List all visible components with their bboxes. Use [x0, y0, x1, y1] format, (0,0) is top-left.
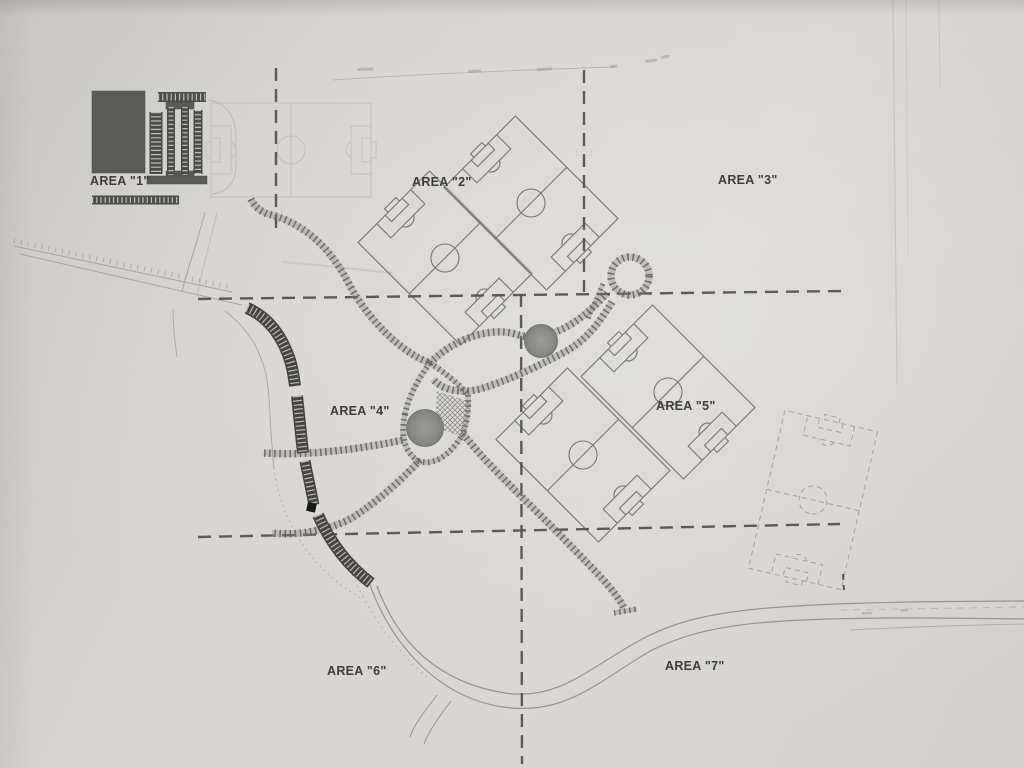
faint-line [208, 100, 236, 194]
penalty-arc [611, 483, 626, 498]
penalty-box [688, 412, 736, 460]
faint-line [893, 0, 897, 385]
faint-line [939, 0, 940, 88]
goal-box [523, 395, 546, 418]
penalty-arc [346, 142, 351, 158]
penalty-box [211, 126, 231, 174]
penalty-box [377, 190, 425, 238]
soccer-field [354, 167, 535, 348]
scan-smudge [610, 65, 617, 68]
trail-rungs [272, 460, 420, 534]
faint-line [20, 254, 242, 305]
structure-marker [306, 502, 317, 513]
penalty-arc [696, 420, 711, 435]
goal [608, 332, 623, 347]
goal [523, 395, 538, 410]
faint-line [14, 241, 230, 287]
area-5-label: AREA "5" [656, 399, 716, 413]
faint-line [850, 624, 1024, 630]
field-halfway-line [632, 356, 703, 427]
road-edge-line [377, 586, 1024, 694]
area-2-label: AREA "2" [412, 175, 472, 189]
faint-line [906, 0, 908, 255]
soccer-field [577, 301, 758, 482]
faint-line [182, 212, 205, 291]
penalty-arc [818, 439, 835, 447]
building [92, 91, 145, 173]
boundary-dashed-line [521, 294, 522, 764]
trail-rungs [430, 293, 607, 363]
goal [371, 142, 376, 158]
scan-smudge [900, 609, 908, 612]
area-4-label: AREA "4" [330, 404, 390, 418]
goal-box [362, 138, 371, 162]
penalty-arc [625, 349, 640, 364]
goal-box [481, 294, 504, 317]
field-halfway-line [547, 419, 618, 490]
goal [629, 501, 644, 516]
penalty-arc [791, 553, 808, 561]
road-edge-line [366, 573, 1024, 708]
penalty-arc [473, 286, 488, 301]
soccer-field [492, 364, 673, 545]
goal-box [471, 143, 494, 166]
penalty-box [551, 223, 599, 271]
faint-line [173, 309, 177, 357]
plan-geometry-layer [14, 0, 1024, 764]
faint-line [333, 67, 615, 80]
penalty-box [603, 475, 651, 523]
soccer-field [440, 112, 621, 293]
penalty-arc [559, 231, 574, 246]
area-7-label: AREA "7" [665, 659, 725, 673]
penalty-box [351, 126, 371, 174]
penalty-arc [540, 412, 555, 427]
trail-body [430, 293, 607, 363]
penalty-box [600, 324, 648, 372]
penalty-arc [488, 160, 503, 175]
scan-smudge [468, 70, 481, 73]
field-halfway-line [409, 222, 480, 293]
field-halfway-line [495, 167, 566, 238]
goal [491, 304, 506, 319]
site-plan-photo: AREA "1" AREA "2" AREA "3" AREA "4" AREA… [0, 0, 1024, 768]
scan-smudge [537, 67, 552, 71]
goal [385, 198, 400, 213]
penalty-arc [402, 215, 417, 230]
area-1-label: AREA "1" [90, 174, 150, 188]
site-plan-drawing: AREA "1" AREA "2" AREA "3" AREA "4" AREA… [0, 0, 1024, 768]
goal [714, 438, 729, 453]
faint-line [840, 607, 1024, 610]
area-6-label: AREA "6" [327, 664, 387, 678]
trail-body [405, 363, 430, 414]
penalty-box [465, 278, 513, 326]
goal-box [608, 332, 631, 355]
scan-smudge [661, 55, 669, 59]
trail-body [611, 257, 649, 295]
scan-smudge [862, 612, 872, 615]
goal-box [704, 428, 727, 451]
scan-smudge [357, 67, 373, 71]
goal [471, 143, 486, 158]
road-edge-line [410, 695, 437, 737]
penalty-arc [231, 142, 236, 158]
penalty-box [803, 416, 854, 446]
area-3-label: AREA "3" [718, 173, 778, 187]
pond-circle [407, 410, 444, 447]
faint-line [197, 213, 217, 297]
goal [823, 414, 840, 422]
scan-smudge [645, 58, 657, 63]
field-halfway-line [767, 489, 860, 510]
faint-line [225, 311, 274, 468]
goal-box [385, 198, 408, 221]
pond-circle [525, 325, 558, 358]
parking-edge-bar [147, 176, 207, 184]
goal-box [211, 138, 220, 162]
goal-box [619, 491, 642, 514]
goal-box [567, 239, 590, 262]
soccer-field [747, 406, 878, 595]
goal [206, 142, 211, 158]
